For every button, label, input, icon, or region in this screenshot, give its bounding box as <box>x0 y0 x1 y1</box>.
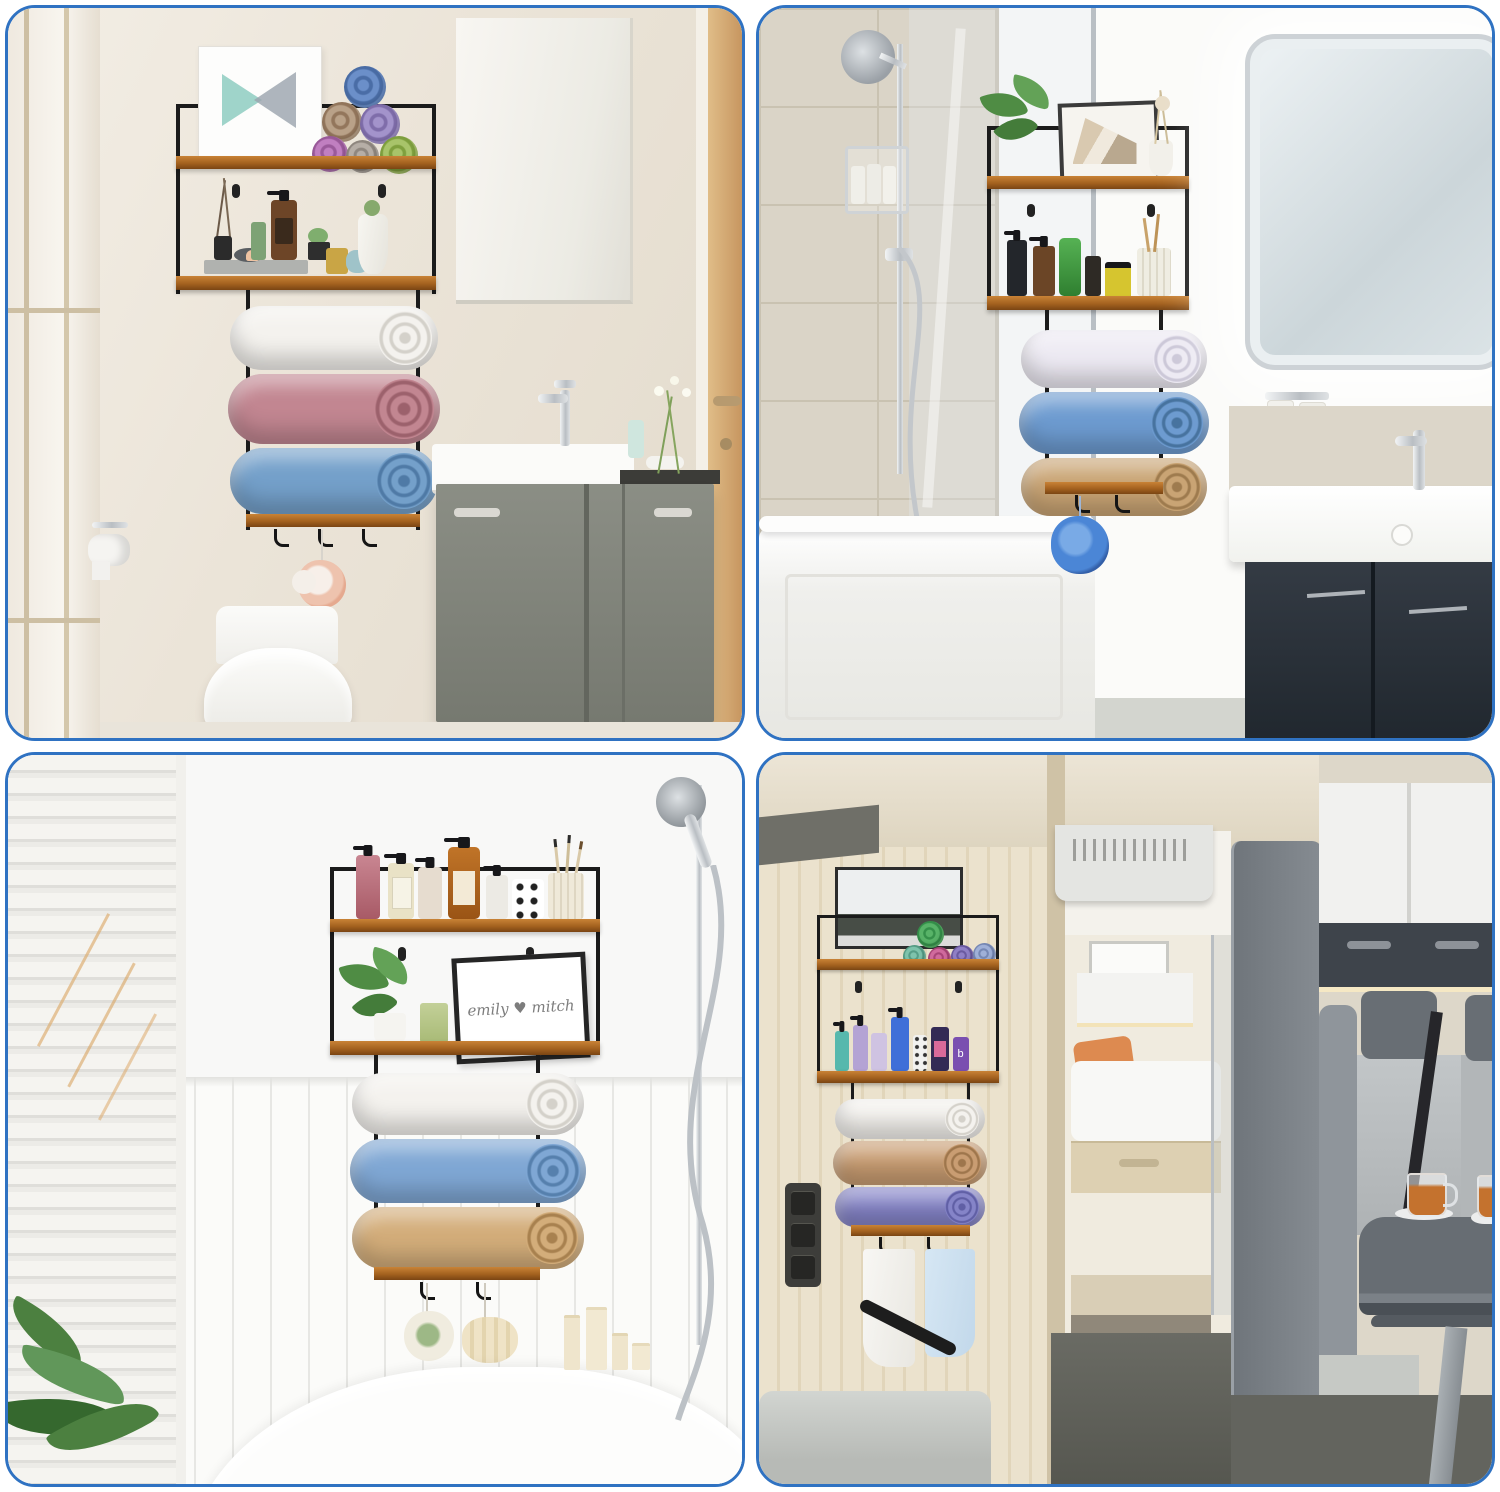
lavender-bottle <box>853 1025 868 1071</box>
purple-b-bottle: b <box>953 1037 969 1071</box>
sink-overflow <box>1391 524 1413 546</box>
seat-side-bolster <box>1319 1005 1357 1395</box>
shampoo-bottle-white <box>883 166 896 204</box>
diffuser-bloom <box>1155 96 1170 111</box>
dark-dropper-bottle <box>1085 256 1101 296</box>
loofah-string <box>321 530 323 564</box>
cabinet-handle-slot <box>1435 941 1479 949</box>
lower-wood-shelf <box>987 296 1189 310</box>
switch-button <box>791 1255 815 1279</box>
shower-hose <box>869 238 989 538</box>
keyhole-hanger <box>955 981 962 993</box>
mirror-cabinet <box>456 18 633 304</box>
teal-bottle <box>835 1031 849 1071</box>
door-handle <box>713 396 741 406</box>
lower-wood-shelf <box>176 276 436 290</box>
partition-panel <box>1231 841 1322 1395</box>
hall-floor <box>1051 1333 1239 1488</box>
white-small-bottle <box>486 875 508 919</box>
shampoo-bottle-white <box>867 164 881 204</box>
lower-wood-shelf <box>817 1071 999 1083</box>
bottle-label <box>275 218 293 244</box>
diffuser-pot <box>214 236 232 260</box>
table-lower-layer <box>1371 1315 1496 1327</box>
bed-drawers <box>1071 1141 1221 1193</box>
faucet-spout <box>538 394 568 403</box>
upper-wood-shelf <box>987 176 1189 189</box>
frame-art-triangle <box>254 72 296 128</box>
product-photo-collage: emily ♥ mitch <box>0 0 1500 1492</box>
amber-bottle <box>1033 246 1055 296</box>
bath-towel-blue <box>230 448 438 514</box>
counter-dark <box>620 470 720 484</box>
tea-glass-handle <box>1443 1183 1458 1207</box>
candle <box>564 1315 580 1370</box>
cabinet-handle <box>454 508 500 517</box>
rack-right-post <box>1185 126 1189 310</box>
rolled-towel-white <box>835 1099 985 1139</box>
shower-hose <box>618 865 745 1425</box>
green-bottle <box>1059 238 1081 296</box>
rack-right-post <box>596 867 600 1055</box>
cabinet-seam <box>1407 783 1411 929</box>
led-mirror <box>1245 34 1496 370</box>
bathtub-rim <box>759 516 1095 532</box>
sponge-round-green <box>404 1311 454 1361</box>
cabinet-light-strip <box>1077 1023 1193 1027</box>
toilet-paper-bracket <box>92 522 128 528</box>
photo-bathroom-over-toilet <box>5 5 745 741</box>
rack-right-post <box>996 915 999 1073</box>
door-frame-line <box>24 8 29 741</box>
bath-towel-mauve <box>228 374 440 444</box>
keyhole-hanger <box>378 184 386 198</box>
keyhole-hanger <box>232 184 240 198</box>
plant-pot-white <box>374 1013 406 1043</box>
rack-right-post <box>432 104 436 294</box>
tray <box>204 260 308 274</box>
green-candle <box>420 1003 448 1043</box>
bath-towel-blue <box>1019 392 1209 454</box>
rolled-towel-periwinkle <box>835 1187 985 1227</box>
upper-wood-shelf <box>176 156 436 169</box>
photo-bathroom-shower-led-mirror <box>756 5 1496 741</box>
cream-lotion-bottle <box>418 867 442 919</box>
towel-hook <box>362 529 377 547</box>
sponge-string <box>484 1283 486 1317</box>
holder-wood-bar <box>851 1225 970 1236</box>
faucet-handle <box>554 380 576 388</box>
rack-left-post <box>176 104 180 294</box>
holder-wood-bar <box>246 514 420 527</box>
flower-blossom <box>670 376 679 385</box>
sink-slab <box>1229 486 1496 562</box>
bath-towel-tan <box>352 1207 584 1269</box>
candle <box>586 1307 607 1370</box>
white-faceted-vase <box>358 214 388 274</box>
vanity-cabinet <box>436 484 714 722</box>
bed-duvet <box>1071 1061 1221 1141</box>
towel-hook <box>1075 495 1090 513</box>
door-frame-rail <box>8 618 100 623</box>
bath-towel-blue <box>350 1139 586 1203</box>
headrest <box>1465 995 1496 1061</box>
cabinet-door-seam <box>1371 562 1375 741</box>
sponge-shell-cream <box>462 1317 518 1363</box>
overhead-cabinet-gray-band <box>1319 923 1496 987</box>
keyhole-hanger <box>1027 204 1035 217</box>
flower-blossom <box>654 386 664 396</box>
rolled-towel-tan <box>833 1141 987 1185</box>
switch-button <box>791 1223 815 1247</box>
step <box>1071 1275 1211 1315</box>
step-riser <box>1071 1315 1211 1333</box>
rack-left-post <box>817 915 820 1073</box>
flower-blossom <box>682 388 691 397</box>
cabinet-handle <box>654 508 692 517</box>
holder-wood-bar <box>374 1267 540 1280</box>
ribbed-cup <box>548 873 584 919</box>
ac-unit <box>1055 825 1213 901</box>
sponge-string <box>426 1283 428 1313</box>
floor <box>100 722 745 741</box>
faucet-spout <box>1395 436 1427 446</box>
door-frame-rail <box>8 308 100 313</box>
utensil-cup <box>1137 248 1171 296</box>
switch-button <box>791 1191 815 1215</box>
glass-bottle <box>628 420 644 458</box>
photo-rv-camper-interior: b <box>756 752 1496 1488</box>
diffuser-vase <box>1149 140 1173 176</box>
upper-wood-shelf <box>330 919 600 932</box>
gold-candle <box>326 248 348 274</box>
photo-bathroom-bathtub-shower: emily ♥ mitch <box>5 752 745 1488</box>
frame-script-text: emily ♥ mitch <box>467 996 575 1020</box>
tub-front-recess <box>785 574 1063 720</box>
table-top <box>1359 1217 1496 1315</box>
door-frame-line <box>64 8 69 741</box>
loofah-white-pom <box>292 570 316 594</box>
pink-pump-bottle <box>356 855 380 919</box>
bench-seat <box>759 1391 991 1488</box>
shampoo-bottle-white <box>851 166 865 204</box>
rolled-washcloth-green <box>917 921 944 948</box>
bedroom-cabinet <box>1077 973 1193 1026</box>
towel-hook <box>274 529 289 547</box>
rack-left-post <box>330 867 334 1055</box>
towel-hook <box>1115 495 1130 513</box>
blue-pump-bottle <box>891 1017 909 1071</box>
tea-glass <box>1407 1173 1447 1217</box>
drawer-handle <box>1119 1159 1159 1167</box>
rolled-washcloth-blue <box>344 66 386 108</box>
white-dotted-bottle <box>913 1035 927 1071</box>
black-pump-bottle <box>1007 240 1027 296</box>
bath-towel-white <box>352 1073 584 1135</box>
glazed-door-left <box>8 8 100 741</box>
upper-wood-shelf <box>817 959 999 970</box>
vase-sprig <box>364 200 380 216</box>
bath-towel-white <box>230 306 438 370</box>
toilet-paper-sheet <box>92 562 110 580</box>
loofah-blue <box>1051 516 1109 574</box>
bottle-letter: b <box>957 1048 963 1060</box>
bottle-label <box>453 871 475 905</box>
skylight <box>1089 941 1169 977</box>
polka-dot-cup <box>512 879 544 919</box>
holder-wood-bar <box>1045 482 1163 494</box>
cabinet-door-seam <box>622 484 625 722</box>
lilac-bottle <box>871 1033 887 1071</box>
rack-left-post <box>987 126 991 310</box>
keyhole-hanger <box>855 981 862 993</box>
bath-towel-white <box>1021 330 1207 388</box>
rack-top-rail <box>817 915 999 918</box>
tea-glass <box>1477 1175 1496 1219</box>
cabinet-handle-slot <box>1347 941 1391 949</box>
ac-vent-grid <box>1073 839 1193 861</box>
cabinet-door-seam <box>584 484 589 722</box>
lower-wood-shelf <box>330 1041 600 1055</box>
pink-label <box>934 1041 946 1057</box>
door-lock <box>720 438 732 450</box>
bottle-label <box>392 877 412 909</box>
green-bottle <box>251 222 266 260</box>
shelf-bracket <box>1265 392 1329 400</box>
backsplash <box>1229 406 1496 492</box>
keyhole-hanger <box>1147 204 1155 217</box>
